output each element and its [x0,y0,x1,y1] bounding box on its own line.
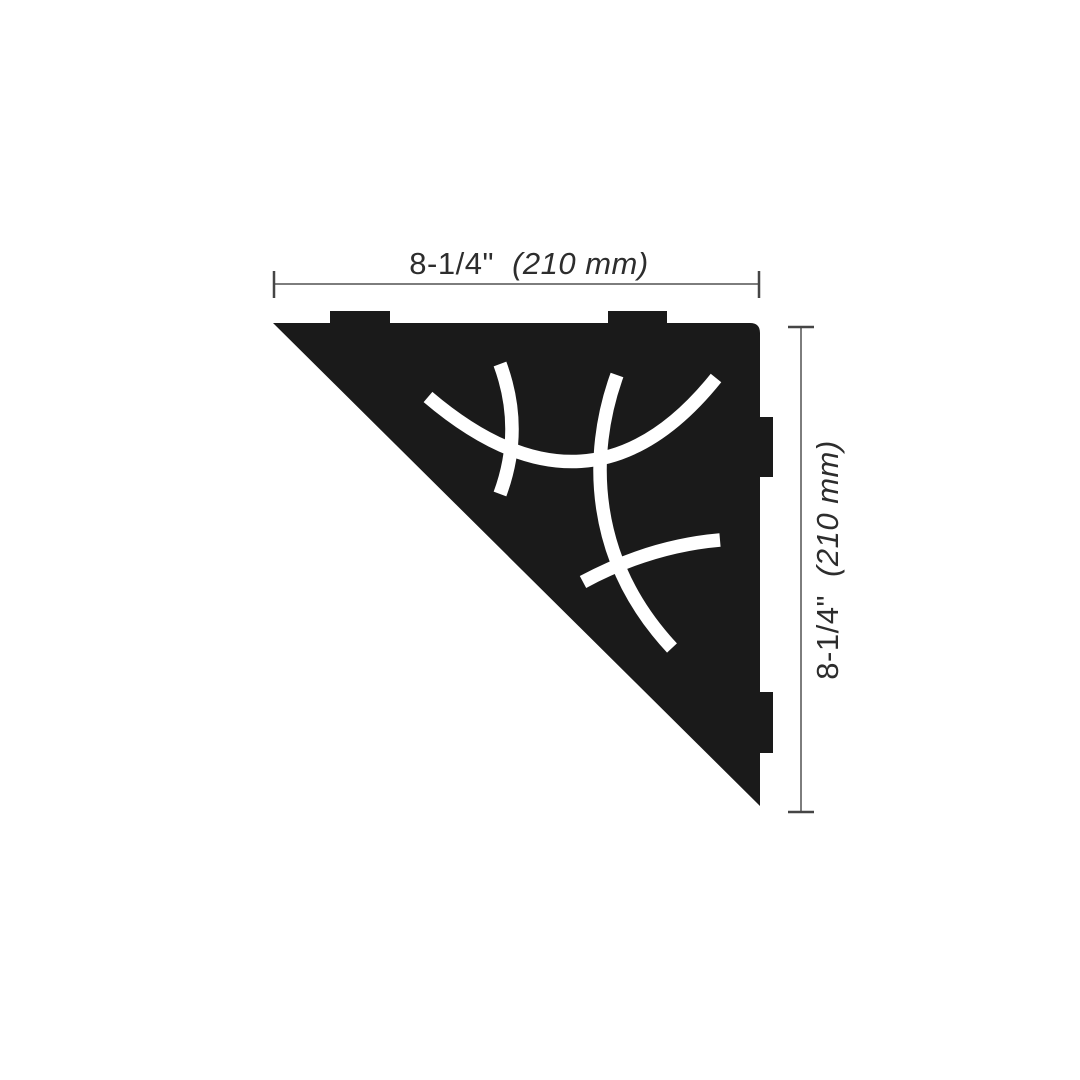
corner-shelf-shape [273,311,773,806]
height-dimension-label: 8-1/4" (210 mm) [810,440,845,679]
height-dimension: 8-1/4" (210 mm) [788,327,845,812]
product-diagram: 8-1/4" (210 mm) 8-1/4" (210 mm) [0,0,1080,1080]
height-imperial-value: 8-1/4" [810,595,845,680]
width-metric-value: (210 mm) [512,246,649,281]
height-metric-value: (210 mm) [810,440,845,577]
width-dimension-label: 8-1/4" (210 mm) [409,246,648,281]
width-dimension: 8-1/4" (210 mm) [274,246,759,298]
diagram-canvas: 8-1/4" (210 mm) 8-1/4" (210 mm) [0,0,1080,1080]
width-imperial-value: 8-1/4" [409,246,494,281]
